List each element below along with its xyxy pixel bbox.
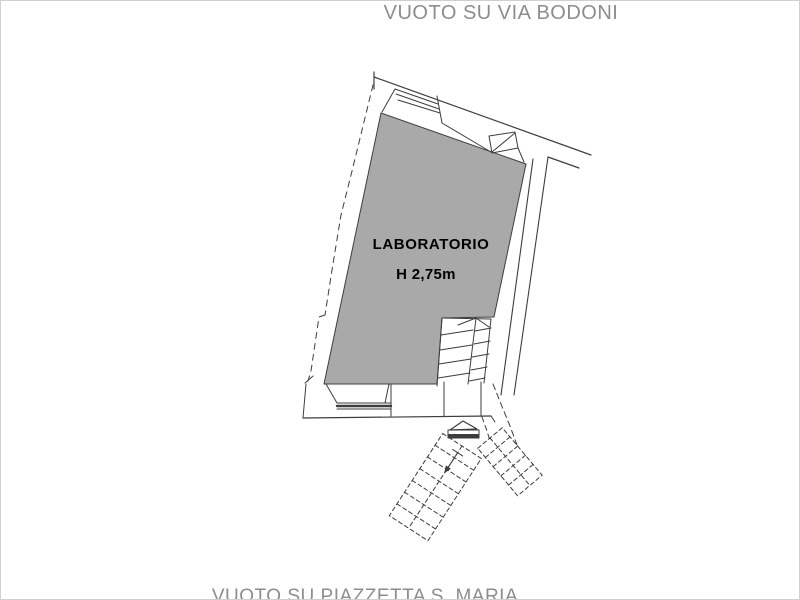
window-splay-left	[326, 384, 337, 403]
wall-return-line	[548, 157, 579, 168]
dashed-connector	[482, 417, 490, 441]
right-wall-dashed-projection	[493, 384, 517, 445]
bottom-wall-window	[303, 382, 495, 422]
flight-center-line	[490, 438, 530, 485]
interior-staircase	[437, 318, 491, 386]
floorplan-page: VUOTO SU VIA BODONI	[0, 0, 800, 600]
window-splay-right	[385, 384, 389, 403]
dashed-stair-flight-right	[478, 428, 542, 496]
threshold-arrow-symbol	[448, 421, 479, 438]
street-label-piazzetta-s-maria: VUOTO SU PIAZZETTA S. MARIA	[212, 587, 518, 600]
floor-plan-drawing	[1, 1, 800, 600]
room-name-label: LABORATORIO	[373, 236, 490, 253]
room-height-label: H 2,75m	[396, 266, 456, 283]
dashed-stair-flight-left	[389, 433, 481, 540]
bottom-boundary-line	[303, 416, 491, 418]
